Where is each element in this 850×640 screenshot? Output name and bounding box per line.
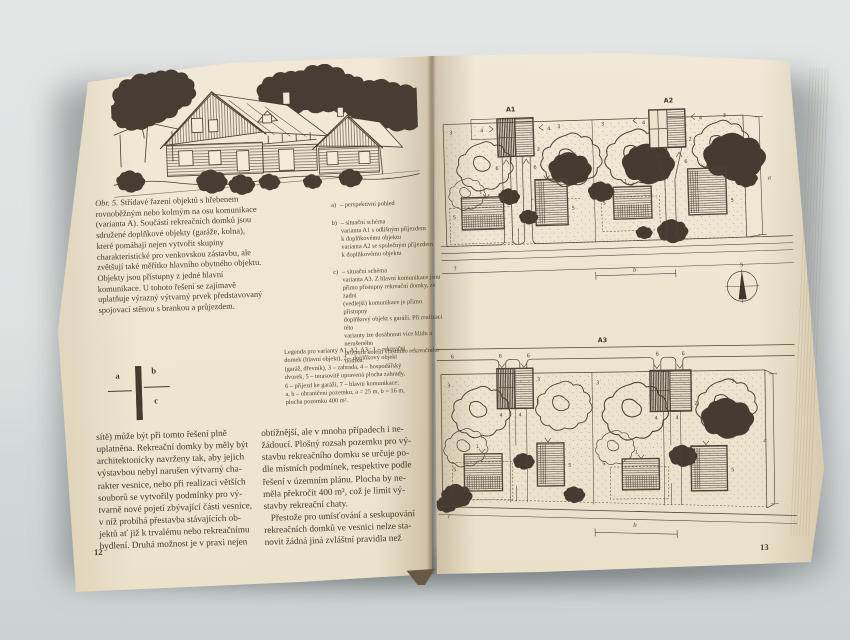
page-number-left: 12: [94, 547, 103, 557]
house-plot4: [687, 164, 727, 215]
figure-key: a b c: [107, 365, 173, 423]
plot-number-terrace: 5: [731, 467, 734, 473]
plot-number-driveway: 6: [656, 351, 659, 357]
rear-road: [437, 345, 795, 374]
dimension-a: [765, 370, 779, 508]
garage-block-a3-right: [650, 370, 692, 412]
plot-number-garden: 3: [731, 378, 734, 384]
plot-number-terrace: 5: [602, 461, 605, 467]
plot-number-garden: 3: [447, 383, 450, 389]
plot-number-house: 1: [624, 179, 627, 185]
book-photo: Obr. 5. Střídavé řazení objektů s hřeben…: [0, 0, 850, 640]
house-a3-4: [691, 440, 728, 490]
plot-number-yard: 4: [699, 115, 702, 121]
plot-number-house: 1: [476, 444, 479, 450]
site-plan-top: A1 A2 3 4 4 3 2 6 6 1 5 5 3 4 4 3 2 6 6 …: [436, 79, 808, 352]
connecting-wall-gate: [262, 132, 317, 172]
plot-number-terrace: 5: [572, 205, 575, 211]
garage-block-a2: [649, 109, 686, 148]
house-a3-2: [537, 438, 565, 486]
plot-number-house: 1: [479, 189, 482, 195]
legend-note: Legenda pro varianty A1, A2, A3 : 1 – re…: [284, 344, 440, 408]
plot-number-driveway: 6: [650, 160, 653, 166]
plot-number-yard: 4: [480, 128, 483, 134]
plot-number-garden: 3: [596, 380, 599, 386]
variant-label-a2: A2: [664, 96, 674, 104]
page-number-right: 13: [760, 542, 769, 552]
plot-number-annex: 2: [537, 147, 540, 153]
dimension-b: [595, 527, 677, 539]
plot-number-terrace: 5: [568, 463, 571, 469]
dimension-label-b: b: [633, 268, 637, 274]
compass-north-label: S: [740, 262, 743, 268]
plot-number-road: 7: [453, 266, 456, 272]
plot-number-garden: 3: [449, 130, 452, 136]
body-column-right: obtížnější, ale v mnoha případech i ne- …: [261, 422, 439, 549]
main-road: [439, 502, 797, 529]
plot-number-garden: 3: [557, 124, 560, 130]
dimension-label-a: a: [764, 438, 767, 444]
plot-number-driveway: 6: [682, 351, 685, 357]
plot-number-annex: 2: [689, 137, 692, 143]
list-marker-a: a): [331, 202, 340, 210]
plot-number-driveway: 6: [495, 166, 498, 172]
figure-key-a: a: [115, 371, 120, 381]
caption-key-list: a) – perspektivní pohled b) – situační s…: [331, 199, 444, 366]
figure-caption: Obr. 5. Střídavé řazení objektů s hřeben…: [95, 192, 319, 317]
plot-number-yard: 4: [655, 415, 658, 421]
figure-key-divider: [135, 366, 143, 420]
plot-number-terrace: 5: [453, 215, 456, 221]
plot-number-driveway: 6: [684, 159, 687, 165]
figure-key-line-a: [108, 390, 132, 392]
variant-label-a1: A1: [506, 105, 516, 113]
plot-number-yard: 4: [547, 126, 550, 132]
plot-number-yard: 4: [518, 412, 521, 418]
figure-key-c: c: [154, 395, 158, 405]
plot-number-driveway: 6: [451, 354, 454, 360]
cottage-illustration: [110, 61, 420, 204]
dimension-label-b: b: [633, 523, 637, 529]
figure-key-b: b: [151, 365, 156, 375]
plot-number-house: 1: [635, 450, 638, 456]
plot-number-yard: 4: [676, 415, 679, 421]
variant-label-a3: A3: [598, 336, 608, 344]
plot-number-annex: 2: [536, 399, 539, 405]
plot-number-annex: 2: [694, 401, 697, 407]
list-text-b: – situační schéma varianta A1 s odlišným…: [341, 217, 441, 261]
caption-text: Střídavé řazení objektů s hřebenem rovno…: [95, 194, 262, 314]
plot-number-terrace: 5: [453, 467, 456, 473]
plot-number-terrace: 5: [730, 197, 733, 203]
body-column-left: sítě) může být při tomto řešení plně upl…: [96, 426, 262, 553]
plot-number-driveway: 6: [499, 354, 502, 360]
figure-key-line-b: [144, 386, 170, 388]
site-plan-a3: A3 6 6 6 6 6 3 3 3 3 2 2 4 4 4 4 1 1 5 5…: [434, 331, 801, 568]
plot-number-yard: 4: [642, 120, 645, 126]
compass-icon: [725, 269, 760, 304]
plot-number-yard: 4: [499, 413, 502, 419]
plot-number-road: 7: [447, 514, 450, 520]
plot-number-terrace: 5: [603, 201, 606, 207]
plot-number-garden: 3: [601, 122, 604, 128]
dimension-label-a: a: [768, 175, 772, 181]
list-item-b: b) – situační schéma varianta A1 s odliš…: [332, 217, 441, 261]
plot-number-garden: 3: [723, 113, 726, 119]
list-text-a: – perspektivní pohled: [340, 199, 439, 210]
caption-label: Obr. 5.: [95, 198, 118, 208]
plot-number-driveway: 6: [533, 165, 536, 171]
garage-block-a3-left: [497, 368, 534, 408]
plot-number-garden: 3: [537, 377, 540, 383]
plot-number-driveway: 6: [527, 353, 530, 359]
garage-block-a1: [497, 118, 534, 157]
